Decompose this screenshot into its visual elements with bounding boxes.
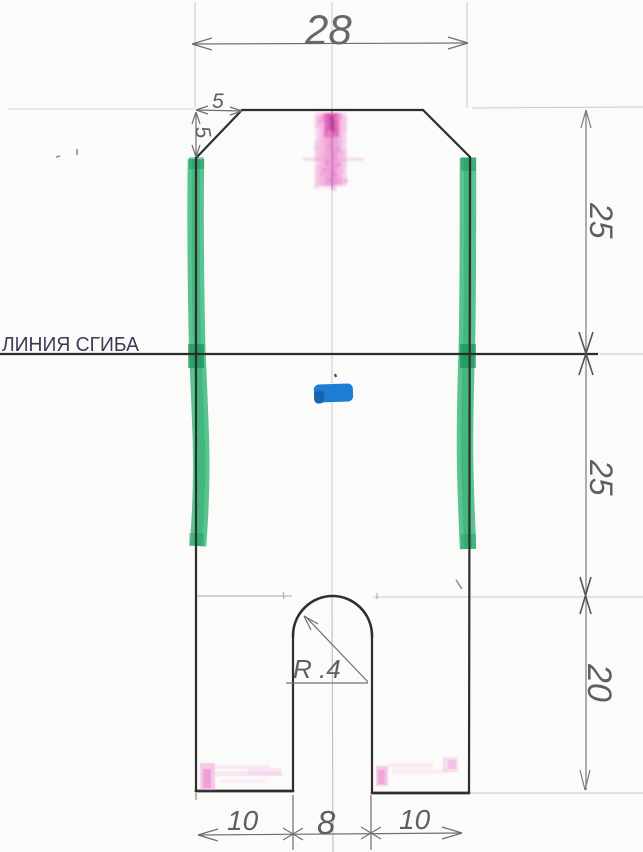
svg-text:25: 25: [583, 459, 619, 496]
svg-text:8: 8: [317, 804, 336, 841]
svg-text:10: 10: [399, 804, 431, 835]
svg-text:25: 25: [583, 202, 619, 239]
svg-text:ЛИНИЯ СГИБА: ЛИНИЯ СГИБА: [2, 334, 140, 356]
svg-text:20: 20: [580, 663, 618, 702]
svg-text:R .4: R .4: [293, 654, 341, 684]
svg-text:5: 5: [212, 90, 224, 113]
svg-text:28: 28: [304, 6, 352, 53]
svg-text:10: 10: [227, 805, 259, 836]
